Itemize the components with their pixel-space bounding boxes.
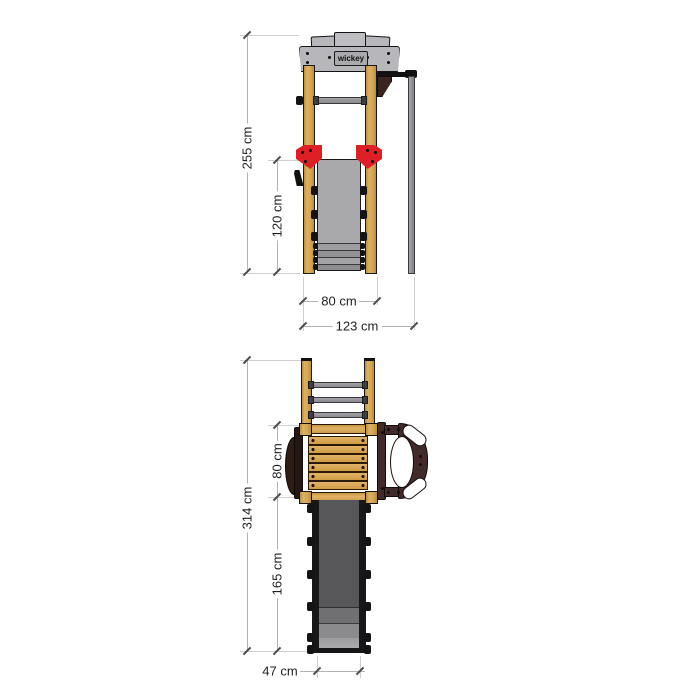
dim-label-slide-length: 165 cm [270, 550, 285, 599]
ext-line [268, 425, 299, 426]
base-peg [313, 257, 318, 263]
brand-logo: wickey [334, 51, 368, 66]
climbing-peg [311, 186, 318, 195]
dim-label-total-depth: 314 cm [240, 484, 255, 533]
tick [243, 268, 251, 276]
slide-peg [307, 602, 314, 611]
slide-peg [307, 537, 314, 546]
platform-rail-top [311, 424, 366, 434]
dim-label-inner-width: 80 cm [318, 294, 359, 309]
rung-cap [308, 396, 314, 404]
support-pole [408, 76, 415, 274]
rung-cap [362, 411, 368, 419]
base-peg [360, 250, 365, 256]
slide-bed [319, 500, 359, 653]
tick [273, 268, 281, 276]
crossbar-cap-left [313, 96, 319, 105]
slide-peg [364, 504, 371, 513]
base-peg [360, 257, 365, 263]
corner-post [299, 491, 312, 504]
climbing-peg [311, 210, 318, 219]
corner-post [299, 423, 312, 436]
ladder-rung [311, 397, 365, 403]
rung-cap [308, 411, 314, 419]
slide-peg [364, 570, 371, 579]
ladder-rung [311, 412, 365, 418]
slide-peg [307, 504, 314, 513]
platform-slat [308, 481, 368, 490]
platform-slat [308, 445, 368, 454]
base-peg [313, 264, 318, 270]
rung-cap [308, 381, 314, 389]
dim-label-wall-height: 120 cm [270, 192, 285, 241]
slide-peg [307, 645, 314, 654]
platform-slat [308, 472, 368, 481]
climbing-peg [360, 210, 367, 219]
rung-cap [362, 396, 368, 404]
dim-label-slide-width: 47 cm [259, 664, 300, 679]
platform-slat [308, 436, 368, 445]
wheel-inner-cutout [390, 436, 414, 488]
base-peg [360, 243, 365, 249]
dimension-drawing: wickey [0, 0, 700, 700]
ladder-rung [311, 382, 365, 388]
dim-label-total-height: 255 cm [240, 124, 255, 173]
dim-line-slide-width [300, 671, 365, 672]
ext-line [240, 360, 301, 361]
slide-peg [307, 570, 314, 579]
left-side-bar [294, 427, 303, 499]
base-peg [360, 264, 365, 270]
brand-logo-text: wickey [338, 54, 364, 63]
crossbar-cap-right [361, 96, 367, 105]
slide-peg [364, 602, 371, 611]
arm-bracket [377, 76, 392, 97]
post-knob [296, 96, 303, 105]
platform-slat [308, 463, 368, 472]
rung-cap [362, 381, 368, 389]
dim-label-total-width: 123 cm [333, 319, 382, 334]
base-peg [313, 243, 318, 249]
base-peg [313, 250, 318, 256]
slide-peg [364, 537, 371, 546]
top-crossbar [314, 97, 366, 104]
wall-panel [317, 159, 361, 271]
climbing-peg [311, 232, 318, 241]
wall-hook [294, 170, 303, 186]
platform-slat [308, 454, 368, 463]
slide-peg [364, 645, 371, 654]
slide-peg [364, 633, 371, 642]
climbing-peg [360, 186, 367, 195]
ext-line [240, 35, 299, 36]
dim-label-platform-depth: 80 cm [270, 440, 285, 481]
climbing-peg [360, 232, 367, 241]
ext-line [240, 273, 300, 274]
slide-peg [307, 633, 314, 642]
